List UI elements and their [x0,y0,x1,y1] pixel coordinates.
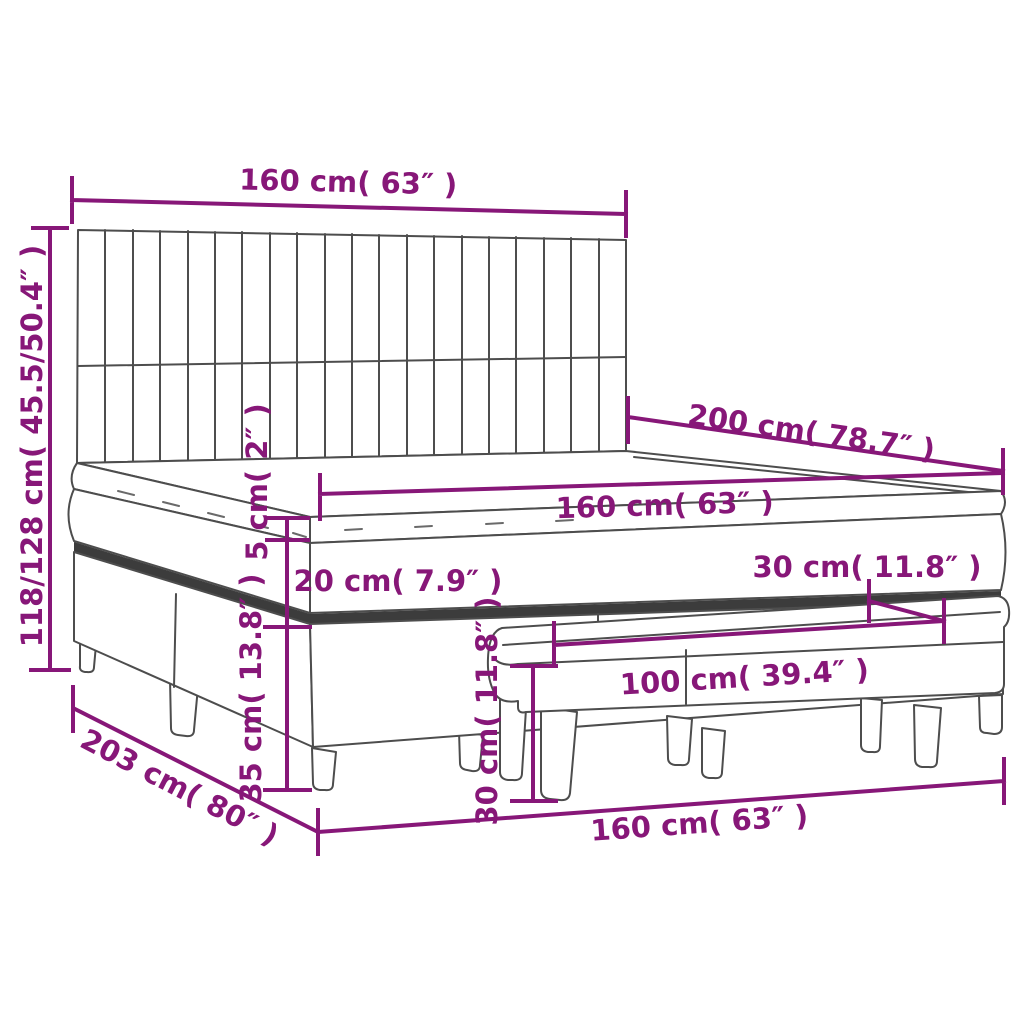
dim-topper-thickness-label: 5 cm( 2″ ) [240,403,274,561]
bench-leg-back-mid [667,716,692,765]
dim-floor-width: 160 cm( 63″ ) [318,759,1004,848]
bench-leg-front-left [541,707,577,800]
bench-leg-front-right [914,705,941,767]
dim-mattress-width-label: 160 cm( 63″ ) [555,485,774,525]
dim-base-height-label: 35 cm( 13.8″ ) [234,573,268,802]
dim-overall-height: 118/128 cm( 45.5/50.4″ ) [15,228,69,670]
dimension-diagram-page: 160 cm( 63″ ) 118/128 cm( 45.5/50.4″ ) 2… [0,0,1024,1024]
bench-leg-back-right [861,698,882,752]
dim-headboard-width: 160 cm( 63″ ) [72,162,626,236]
bed-leg-foot-right [979,695,1002,734]
dim-mattress-thickness-label: 20 cm( 7.9″ ) [294,564,503,598]
dim-bed-length-label: 200 cm( 78.7″ ) [686,398,938,467]
dim-headboard-width-label: 160 cm( 63″ ) [239,162,458,201]
headboard [77,230,626,463]
dim-bench-depth-label: 30 cm( 11.8″ ) [752,550,981,584]
dim-bench-height-label: 30 cm( 11.8″ ) [470,596,504,825]
bed-leg-front-left [312,748,336,790]
bed-dimension-diagram: 160 cm( 63″ ) 118/128 cm( 45.5/50.4″ ) 2… [0,0,1024,1024]
dim-overall-height-label: 118/128 cm( 45.5/50.4″ ) [15,245,49,648]
bed-drawing [69,230,1010,800]
bench-leg-front-mid [702,728,725,778]
dim-floor-width-label: 160 cm( 63″ ) [589,798,809,848]
